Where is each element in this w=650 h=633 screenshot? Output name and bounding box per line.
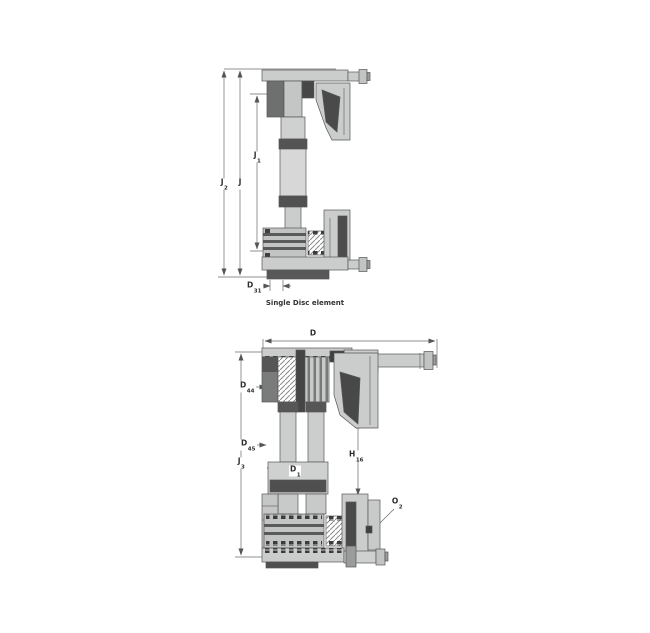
top-right-bolt-tip — [367, 73, 370, 81]
bottom-right-bolt-head — [359, 258, 367, 272]
b-bottom-bolt-head — [376, 549, 385, 565]
dim-label-j1: J1 — [253, 152, 262, 163]
b-housing-lower-insert — [346, 502, 356, 548]
hub-block-dark — [267, 81, 284, 117]
housing-lower-insert — [338, 216, 347, 260]
housing-upper-wedge — [322, 90, 340, 132]
hub-block-light — [284, 81, 302, 117]
b-top-bolt-tip — [433, 355, 436, 365]
b-bottom-bolt-nut — [346, 546, 356, 567]
top-flange-bar — [262, 70, 348, 81]
bottom-dark-strip — [267, 270, 329, 279]
dim-label-d45: D45 — [240, 440, 256, 451]
b-bottom-dark-bar — [266, 562, 318, 568]
b-pedestal-left-lower — [278, 494, 298, 514]
b-pedestal-right — [308, 412, 324, 462]
b-outer-block — [368, 500, 380, 550]
b-bottom-bolt-tip — [385, 552, 388, 561]
dim-label-j: J — [238, 179, 243, 190]
dim-label-o2: O2 — [391, 498, 403, 509]
b-hub-dark-band — [270, 480, 326, 492]
top-right-bolt-head — [359, 70, 367, 84]
caption-single-disc-element: Single Disc element — [266, 299, 344, 307]
dim-label-j2: J2 — [220, 179, 229, 190]
b-pedestal-left — [280, 412, 296, 462]
b-cap-left — [278, 402, 298, 412]
bottom-flange-bar — [262, 257, 348, 270]
b-o-ring — [366, 526, 372, 533]
dim-label-d31: D31 — [246, 282, 262, 293]
b-top-bolt-head — [424, 352, 433, 370]
shaft-upper — [281, 117, 305, 139]
b-cap-right — [306, 402, 326, 412]
technical-drawing-page: J2 J J1 D31 Single Disc element D J3 D44… — [0, 0, 650, 633]
dim-label-d1: D1 — [289, 466, 301, 477]
bottom-diagram-drawing — [235, 339, 437, 568]
dim-label-j3: J3 — [237, 458, 246, 469]
shaft-main — [280, 149, 306, 196]
b-pedestal-right-lower — [306, 494, 326, 514]
drawing-canvas — [0, 0, 650, 633]
shaft-band-upper — [279, 139, 307, 149]
hub-key-dark — [302, 81, 314, 98]
shaft-lower — [285, 207, 301, 229]
bottom-right-bolt-tip — [367, 261, 370, 269]
dim-label-h16: H16 — [348, 451, 364, 462]
dim-label-d44: D44 — [239, 382, 255, 393]
shaft-band-lower — [279, 196, 307, 207]
dim-label-d: D — [309, 330, 317, 341]
